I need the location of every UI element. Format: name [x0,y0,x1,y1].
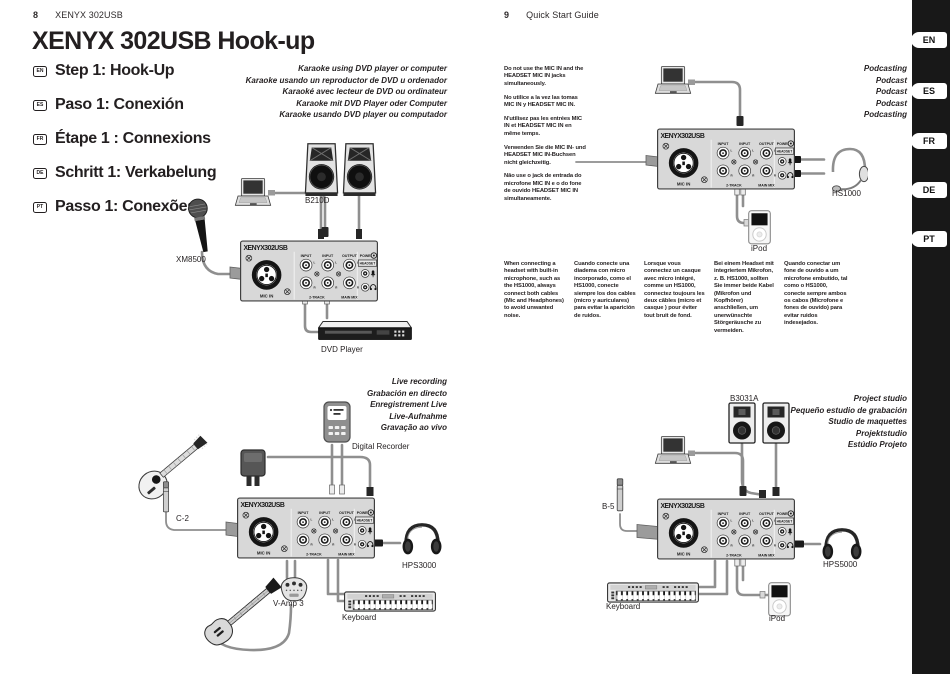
lang-tab-en: EN [911,32,947,48]
headset-label: HS1000 [832,189,861,198]
lang-badge-en: EN [33,66,47,77]
headset-illustration [833,149,869,191]
diagram-karaoke [168,136,428,348]
lang-badge-es: ES [33,100,47,111]
lang-badge-fr: FR [33,134,47,145]
headset-note-pt: Quando conectar um fone de ouvido a um m… [784,261,848,328]
karaoke-captions: Karaoke using DVD player or computer Kar… [240,63,447,121]
mixer-illustration [658,499,795,559]
condenser-mic-label: B-5 [602,502,614,511]
caption-line: Karaoke mit DVD Player oder Computer [240,98,447,110]
right-doc-title: Quick Start Guide [526,10,599,20]
diagram-podcasting [572,58,872,256]
caption-line: Karaoke usando un reproductor de DVD u o… [240,75,447,87]
dynamic-mic-illustration [187,198,215,254]
caption-line: Live recording [290,376,447,388]
lang-tab-es: ES [911,83,947,99]
headset-note-es: Cuando conecte una diadema con micro inc… [574,261,638,320]
caption-line: Karaoké avec lecteur de DVD ou ordinateu… [240,86,447,98]
acoustic-guitar-illustration [133,431,214,505]
ipod-label: iPod [751,244,767,253]
pa-speaker-illustration [343,144,375,196]
keyboard-label: Keyboard [342,613,376,622]
ipod-illustration [769,583,791,616]
mixer-illustration [658,129,795,189]
condenser-mic-illustration [163,482,168,512]
manual-spread: XENYX302USB MIC IN INPUT INPUT [0,0,950,674]
right-page-number: 9 [504,10,509,20]
monitors-label: B3031A [730,394,758,403]
step-label-es: Paso 1: Conexión [55,96,184,114]
lang-tab-fr: FR [911,133,947,149]
headset-note-en: When connecting a headset with built-in … [504,261,568,320]
speakers-label: B210D [305,196,329,205]
right-page-header: 9Quick Start Guide [504,10,599,20]
caption-line: Karaoke using DVD player or computer [240,63,447,75]
laptop-illustration [235,179,270,206]
lang-tab-de: DE [911,182,947,198]
keyboard-illustration [345,592,436,611]
keyboard-label: Keyboard [606,602,640,611]
headset-note-de: Bei einem Headset mit integriertem Mikro… [714,261,778,335]
diagram-project-studio [593,392,895,632]
ipod-label: iPod [769,614,785,623]
step-label-en: Step 1: Hook-Up [55,62,174,80]
condenser-mic-illustration [617,479,623,511]
mic-label: XM8500 [176,255,206,264]
vamp-illustration [281,578,306,601]
caption-line: Karaoke usando DVD player ou computador [240,109,447,121]
mixer-illustration [241,241,378,301]
lang-badge-de: DE [33,168,47,179]
electric-guitar-illustration [201,574,285,650]
power-adapter-illustration [241,450,265,486]
studio-monitor-illustration [763,403,789,443]
mixer-illustration [238,498,375,558]
page-title: XENYX 302USB Hook-up [32,27,315,56]
headphones-illustration [823,530,862,560]
headset-note-fr: Lorsque vous connectez un casque avec mi… [644,261,708,320]
laptop-illustration [655,437,690,464]
ipod-illustration [749,211,771,244]
step-heading-es: ES Paso 1: Conexión [33,96,184,114]
diagram-live-recording [118,393,450,651]
pa-speaker-illustration [305,144,337,196]
condenser-mic-label: C-2 [176,514,189,523]
studio-monitor-illustration [729,403,755,443]
headphones-illustration [403,525,442,555]
headphones-label: HPS3000 [402,561,436,570]
vamp-label: V-Amp 3 [273,599,304,608]
digital-recorder-illustration [324,402,350,442]
dvd-player-illustration [319,321,412,339]
dvd-player-label: DVD Player [321,345,363,354]
left-page-number: 8 [33,10,38,20]
headphones-label: HPS5000 [823,560,857,569]
keyboard-illustration [608,583,699,602]
laptop-illustration [655,67,690,94]
lang-tab-pt: PT [911,231,947,247]
digital-recorder-label: Digital Recorder [352,442,409,451]
step-heading-en: EN Step 1: Hook-Up [33,62,174,80]
lang-badge-pt: PT [33,202,47,213]
language-sidebar [912,0,950,674]
left-page-header: 8XENYX 302USB [33,10,123,20]
left-doc-title: XENYX 302USB [55,10,123,20]
